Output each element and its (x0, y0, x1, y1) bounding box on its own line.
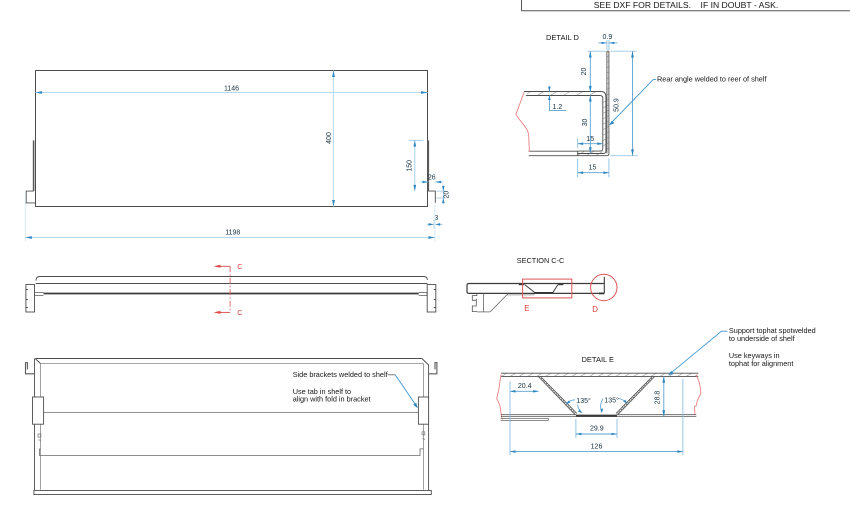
svg-text:30: 30 (582, 119, 589, 127)
svg-text:SECTION C-C: SECTION C-C (517, 256, 564, 265)
svg-text:tophat for alignment: tophat for alignment (729, 359, 794, 368)
svg-text:26: 26 (428, 174, 436, 181)
svg-text:29.9: 29.9 (590, 426, 604, 433)
svg-text:20: 20 (444, 191, 451, 199)
svg-text:20: 20 (581, 68, 588, 76)
svg-text:E: E (524, 304, 529, 313)
svg-text:50.9: 50.9 (613, 98, 620, 112)
svg-text:135°: 135° (604, 397, 619, 405)
svg-text:align with fold in bracket: align with fold in bracket (293, 395, 371, 404)
svg-text:DETAIL D: DETAIL D (546, 33, 580, 42)
svg-text:DETAIL E: DETAIL E (582, 355, 615, 364)
svg-text:1146: 1146 (224, 86, 239, 93)
svg-text:1.2: 1.2 (553, 104, 563, 111)
svg-text:D: D (592, 305, 598, 314)
svg-text:SEE DXF FOR DETAILS. IF IN: SEE DXF FOR DETAILS. IF IN DOUBT - ASK. (594, 0, 778, 10)
svg-text:20.4: 20.4 (518, 383, 532, 390)
svg-text:Side brackets welded to shelf: Side brackets welded to shelf (293, 370, 389, 379)
svg-text:135°: 135° (576, 397, 591, 405)
svg-text:28.8: 28.8 (655, 391, 662, 405)
svg-text:400: 400 (326, 132, 333, 144)
svg-text:Rear angle welded to reer of s: Rear angle welded to reer of shelf (657, 75, 767, 84)
svg-text:to underside of shelf: to underside of shelf (729, 334, 796, 343)
svg-text:150: 150 (406, 160, 413, 172)
svg-text:126: 126 (591, 443, 603, 450)
svg-text:0.9: 0.9 (603, 34, 613, 41)
svg-text:15: 15 (586, 136, 594, 143)
svg-text:15: 15 (589, 165, 597, 172)
svg-text:C: C (237, 264, 242, 271)
svg-text:C: C (237, 310, 242, 317)
svg-text:1198: 1198 (225, 230, 240, 237)
